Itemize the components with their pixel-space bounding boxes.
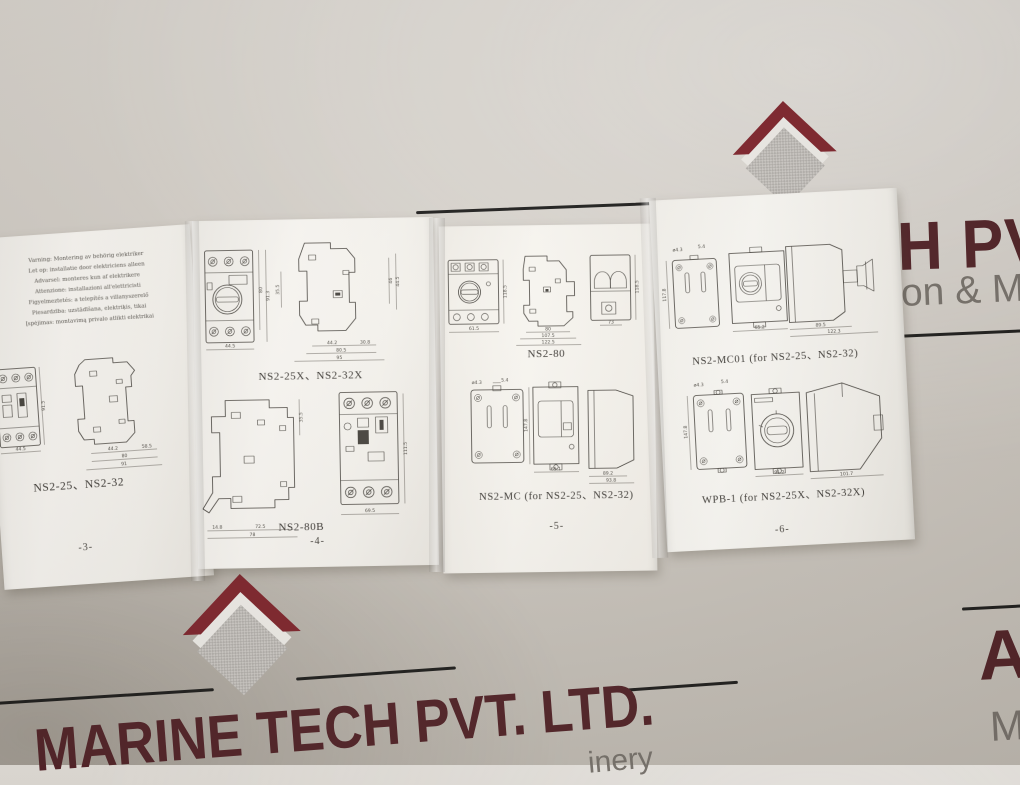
svg-text:44.2: 44.2 bbox=[327, 340, 337, 346]
front-view-wpb-1: 91.2 bbox=[751, 387, 804, 477]
diagram-ns2-25x-32x-and-ns2-80b: 80 91.3 44.5 35.5 44.2 30.8 80.5 95 46 bbox=[192, 217, 439, 569]
letterhead-rule-bottom-left bbox=[0, 688, 214, 705]
letterhead-title-right-fragment: AC bbox=[976, 611, 1020, 696]
back-plate-ns2-mc01: ø4.3 5.4 117.8 bbox=[659, 243, 719, 329]
svg-text:80.5: 80.5 bbox=[336, 347, 346, 353]
svg-text:147.8: 147.8 bbox=[683, 425, 690, 439]
letterhead-tagline-right-fragment: M bbox=[989, 701, 1020, 751]
svg-text:ø4.3: ø4.3 bbox=[693, 382, 703, 389]
page-number: -5- bbox=[539, 521, 575, 533]
photo-of-leaflet-on-letterhead: { "letterhead": { "brand_color": "#51222… bbox=[0, 0, 1020, 765]
model-label: NS2-80B bbox=[261, 521, 341, 534]
model-label: NS2-25X、NS2-32X bbox=[241, 366, 381, 384]
side-view-ns2-80: 80 107.5 122.5 bbox=[515, 256, 581, 346]
svg-text:78: 78 bbox=[249, 532, 255, 538]
svg-text:44.2: 44.2 bbox=[108, 446, 119, 453]
leaflet-panel-page-5: 61.5 118.5 80 107.5 122.5 73 bbox=[439, 224, 658, 574]
front-view: 91.5 44.5 bbox=[0, 367, 50, 454]
side-view: 44.2 58.5 80 91 bbox=[74, 355, 162, 470]
side-view: 35.5 44.2 30.8 80.5 95 46 44.5 bbox=[274, 241, 402, 362]
letterhead-title-bottom: MARINE TECH PVT. LTD. bbox=[32, 669, 656, 784]
svg-text:89.2: 89.2 bbox=[603, 471, 613, 477]
svg-text:111.5: 111.5 bbox=[403, 442, 409, 455]
leaflet-panel-page-3: Varning: Montering av behörig elektriker… bbox=[0, 224, 214, 590]
diagram-ns2-25-ns2-32: 91.5 44.5 44.2 58.5 80 91 bbox=[0, 224, 214, 590]
svg-text:5.4: 5.4 bbox=[698, 244, 706, 250]
svg-text:89.5: 89.5 bbox=[815, 322, 826, 329]
svg-text:118.5: 118.5 bbox=[502, 285, 508, 298]
model-label: NS2-MC (for NS2-25、NS2-32) bbox=[464, 487, 648, 505]
back-plate-ns2-mc: 5.4 ø4.3 bbox=[471, 377, 524, 463]
svg-text:35.5: 35.5 bbox=[275, 284, 281, 294]
svg-text:14.8: 14.8 bbox=[212, 525, 222, 531]
fold-crease-2 bbox=[429, 218, 445, 572]
svg-text:91.5: 91.5 bbox=[40, 400, 47, 411]
svg-text:147.8: 147.8 bbox=[523, 419, 529, 432]
svg-text:93.8: 93.8 bbox=[606, 478, 616, 484]
svg-text:35.5: 35.5 bbox=[298, 412, 304, 422]
rear-view-ns2-80: 73 118.5 bbox=[590, 255, 641, 326]
letterhead-rule-right bbox=[898, 329, 1020, 338]
leaflet-panel-page-6: ø4.3 5.4 117.8 65.2 89.5 bbox=[649, 188, 915, 552]
svg-text:44.5: 44.5 bbox=[395, 276, 401, 286]
front-view-ns2-mc: 147.8 65.1 bbox=[523, 382, 579, 473]
svg-text:58.5: 58.5 bbox=[142, 443, 153, 450]
front-view-ns2-80: 61.5 118.5 bbox=[448, 260, 509, 333]
svg-text:46: 46 bbox=[388, 278, 394, 284]
svg-text:44.5: 44.5 bbox=[15, 446, 26, 453]
svg-text:ø4.3: ø4.3 bbox=[472, 380, 482, 386]
svg-text:ø4.3: ø4.3 bbox=[672, 247, 682, 254]
svg-text:65.1: 65.1 bbox=[551, 466, 561, 472]
front-view-ns2-80b: 111.5 69.5 bbox=[339, 391, 410, 514]
svg-text:107.5: 107.5 bbox=[542, 333, 555, 339]
svg-text:61.5: 61.5 bbox=[469, 326, 479, 332]
svg-text:91: 91 bbox=[121, 461, 127, 467]
front-view-knob: 80 91.3 44.5 bbox=[205, 250, 273, 350]
side-view-wpb-1: 101.7 bbox=[806, 381, 886, 479]
letterhead-rule-far-right bbox=[962, 604, 1020, 610]
svg-text:91.3: 91.3 bbox=[265, 291, 271, 301]
svg-text:69.5: 69.5 bbox=[365, 508, 375, 514]
letterhead-rule-bottom-mid bbox=[296, 666, 456, 680]
model-label: NS2-80 bbox=[516, 348, 576, 361]
svg-text:80: 80 bbox=[121, 453, 127, 459]
page-number: -4- bbox=[299, 536, 335, 548]
svg-text:80: 80 bbox=[545, 326, 551, 332]
leaflet-panel-page-4: 80 91.3 44.5 35.5 44.2 30.8 80.5 95 46 bbox=[192, 217, 439, 569]
page-number: -6- bbox=[762, 523, 803, 536]
back-plate-wpb-1: ø4.3 5.4 147.8 bbox=[680, 378, 747, 474]
svg-text:5.4: 5.4 bbox=[721, 379, 729, 385]
svg-text:101.7: 101.7 bbox=[840, 471, 854, 478]
side-view-ns2-80b: 14.8 72.5 78 35.5 bbox=[201, 399, 306, 539]
svg-text:30.8: 30.8 bbox=[360, 340, 370, 346]
letterhead-tagline-bottom-fragment: inery bbox=[587, 741, 655, 781]
svg-text:117.8: 117.8 bbox=[662, 288, 669, 302]
svg-text:122.3: 122.3 bbox=[827, 328, 841, 335]
side-view-ns2-mc01: 89.5 122.3 bbox=[786, 242, 879, 337]
svg-text:91.2: 91.2 bbox=[774, 470, 785, 477]
svg-text:44.5: 44.5 bbox=[225, 343, 235, 349]
side-view-ns2-mc: 89.2 93.8 bbox=[588, 390, 634, 484]
svg-text:73: 73 bbox=[608, 320, 614, 326]
letterhead-tagline-top-fragment: on & Ma bbox=[900, 266, 1020, 316]
svg-text:118.5: 118.5 bbox=[634, 280, 640, 293]
front-view-ns2-mc01: 65.2 bbox=[729, 246, 788, 332]
svg-text:5.4: 5.4 bbox=[501, 378, 508, 384]
svg-text:122.5: 122.5 bbox=[542, 339, 555, 345]
svg-text:95: 95 bbox=[336, 355, 342, 361]
svg-text:65.2: 65.2 bbox=[754, 324, 765, 331]
brand-logo-bottom-left bbox=[181, 572, 303, 706]
svg-text:80: 80 bbox=[258, 287, 264, 293]
